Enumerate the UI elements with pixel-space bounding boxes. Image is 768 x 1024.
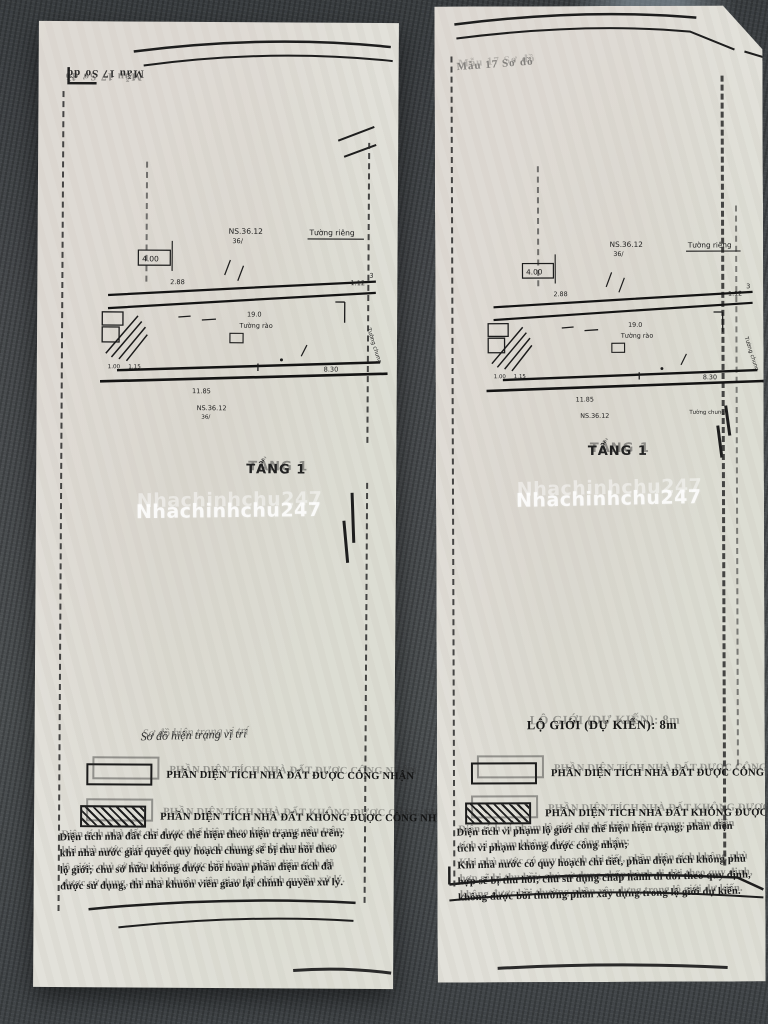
notes-paragraph: Diện tích nhà đất chỉ được thể hiện theo…	[59, 826, 372, 896]
dim-190: 19.0	[247, 310, 262, 318]
notes-paragraph: Diện tích vi phạm lộ giới chỉ thể hiện h…	[456, 818, 754, 907]
legend-label: PHẦN DIỆN TÍCH NHÀ ĐẤT KHÔNG ĐƯỢC CÔNG N…	[160, 811, 452, 824]
dim-3: 3	[369, 272, 373, 280]
dim-830: 8.30	[703, 374, 717, 381]
dim-830: 8.30	[324, 365, 339, 373]
parcel-label: NS.36.12	[229, 227, 264, 236]
parcel-label-bottom: NS.36.12	[580, 413, 609, 420]
wall-fence-label: Tường rào	[238, 322, 272, 330]
wall-shared-label: Tường chung	[365, 326, 383, 364]
document-page-left: Mẫu 17 Sơ đồ NS.36.12 36/ Tường riêng 2.…	[33, 21, 399, 989]
dim-288: 2.88	[553, 291, 567, 298]
wall-shared-label: Tường chung	[742, 335, 760, 372]
dim-400: 4.00	[526, 267, 543, 276]
dim-400: 4.00	[142, 254, 159, 263]
dim-1185: 11.85	[576, 397, 594, 404]
parcel-label: NS.36.12	[610, 240, 643, 249]
dim-112: 1.12	[728, 291, 742, 298]
dim-288: 2.88	[170, 278, 185, 286]
site-plan-svg: NS.36.12 36/ Tường riêng 2.88 3 4.00 1.0…	[89, 221, 400, 421]
road-boundary-heading: LỘ GIỚI (DỰ KIẾN): 8m	[527, 718, 677, 734]
floor-title: TẦNG 1	[588, 444, 648, 459]
legend-swatch-hatched	[80, 805, 146, 827]
wall-own-label: Tường riêng	[308, 228, 354, 237]
dim-3: 3	[746, 283, 750, 290]
wall-shared-bottom: Tường chung	[688, 409, 725, 416]
dim-112: 1.12	[350, 279, 365, 287]
floor-title: TẦNG 1	[246, 462, 306, 477]
legend-row-not-recognized: PHẦN DIỆN TÍCH NHÀ ĐẤT KHÔNG ĐƯỢC CÔNG N…	[80, 805, 452, 829]
wall-fence-label: Tường rào	[620, 332, 653, 340]
parcel-sub-label: 36/	[613, 251, 624, 258]
form-number-label: Mẫu 17 Sơ đồ	[67, 67, 144, 79]
legend-swatch-empty	[86, 763, 152, 785]
wall-own-label: Tường riêng	[687, 240, 732, 249]
site-plan-drawing: NS.36.12 36/ Tường riêng 2.88 3 4.00 1.0…	[475, 235, 768, 441]
legend-swatch-hatched	[465, 802, 531, 824]
legend-label: PHẦN DIỆN TÍCH NHÀ ĐẤT KHÔNG ĐƯỢC CÔNG N…	[545, 807, 768, 819]
site-plan-drawing: NS.36.12 36/ Tường riêng 2.88 3 4.00 1.0…	[88, 221, 399, 433]
document-page-right: Mẫu 17 Sơ đồ NS.36.12 36/ Tường riêng 2.…	[434, 5, 765, 982]
plan-caption: Sơ đồ hiện trạng vị trí	[140, 726, 246, 744]
parcel-label-bottom: NS.36.12	[197, 404, 227, 412]
legend-label: PHẦN DIỆN TÍCH NHÀ ĐẤT ĐƯỢC CÔNG NHẬN	[551, 767, 768, 779]
dim-190: 19.0	[628, 322, 642, 329]
watermark-text: Nhachinhchu247	[136, 499, 322, 523]
legend-label: PHẦN DIỆN TÍCH NHÀ ĐẤT ĐƯỢC CÔNG NHẬN	[166, 769, 414, 782]
dim-1185: 11.85	[192, 387, 211, 395]
site-plan-svg: NS.36.12 36/ Tường riêng 2.88 3 4.00 1.0…	[475, 235, 768, 427]
parcel-sub-label: 36/	[232, 237, 243, 245]
legend-swatch-empty	[471, 762, 537, 784]
legend-row-recognized: PHẦN DIỆN TÍCH NHÀ ĐẤT ĐƯỢC CÔNG NHẬN	[471, 761, 768, 784]
legend-row-recognized: PHẦN DIỆN TÍCH NHÀ ĐẤT ĐƯỢC CÔNG NHẬN	[86, 763, 414, 787]
parcel-sub-bottom: 36/	[201, 415, 210, 421]
watermark-text: Nhachinhchu247	[516, 486, 702, 512]
